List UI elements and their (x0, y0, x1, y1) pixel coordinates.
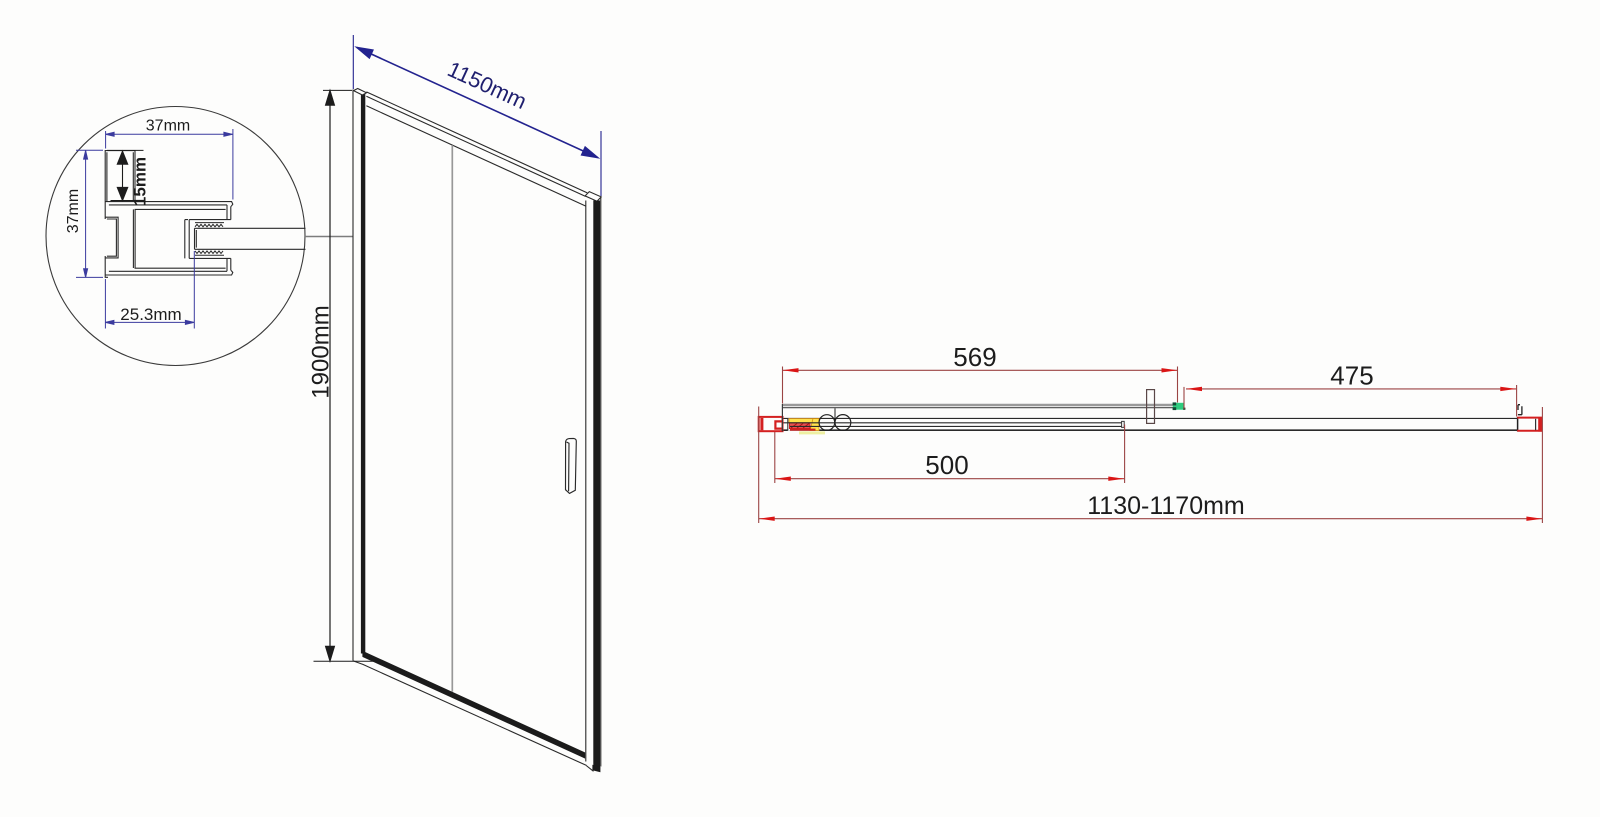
svg-text:569: 569 (953, 342, 996, 372)
svg-text:1900mm: 1900mm (308, 305, 335, 398)
svg-text:475: 475 (1330, 361, 1373, 391)
svg-text:15mm: 15mm (131, 157, 150, 206)
svg-text:25.3mm: 25.3mm (120, 305, 181, 324)
svg-text:1130-1170mm: 1130-1170mm (1087, 492, 1245, 520)
svg-text:37mm: 37mm (65, 189, 82, 233)
svg-text:500: 500 (925, 450, 968, 480)
svg-text:37mm: 37mm (146, 118, 190, 135)
